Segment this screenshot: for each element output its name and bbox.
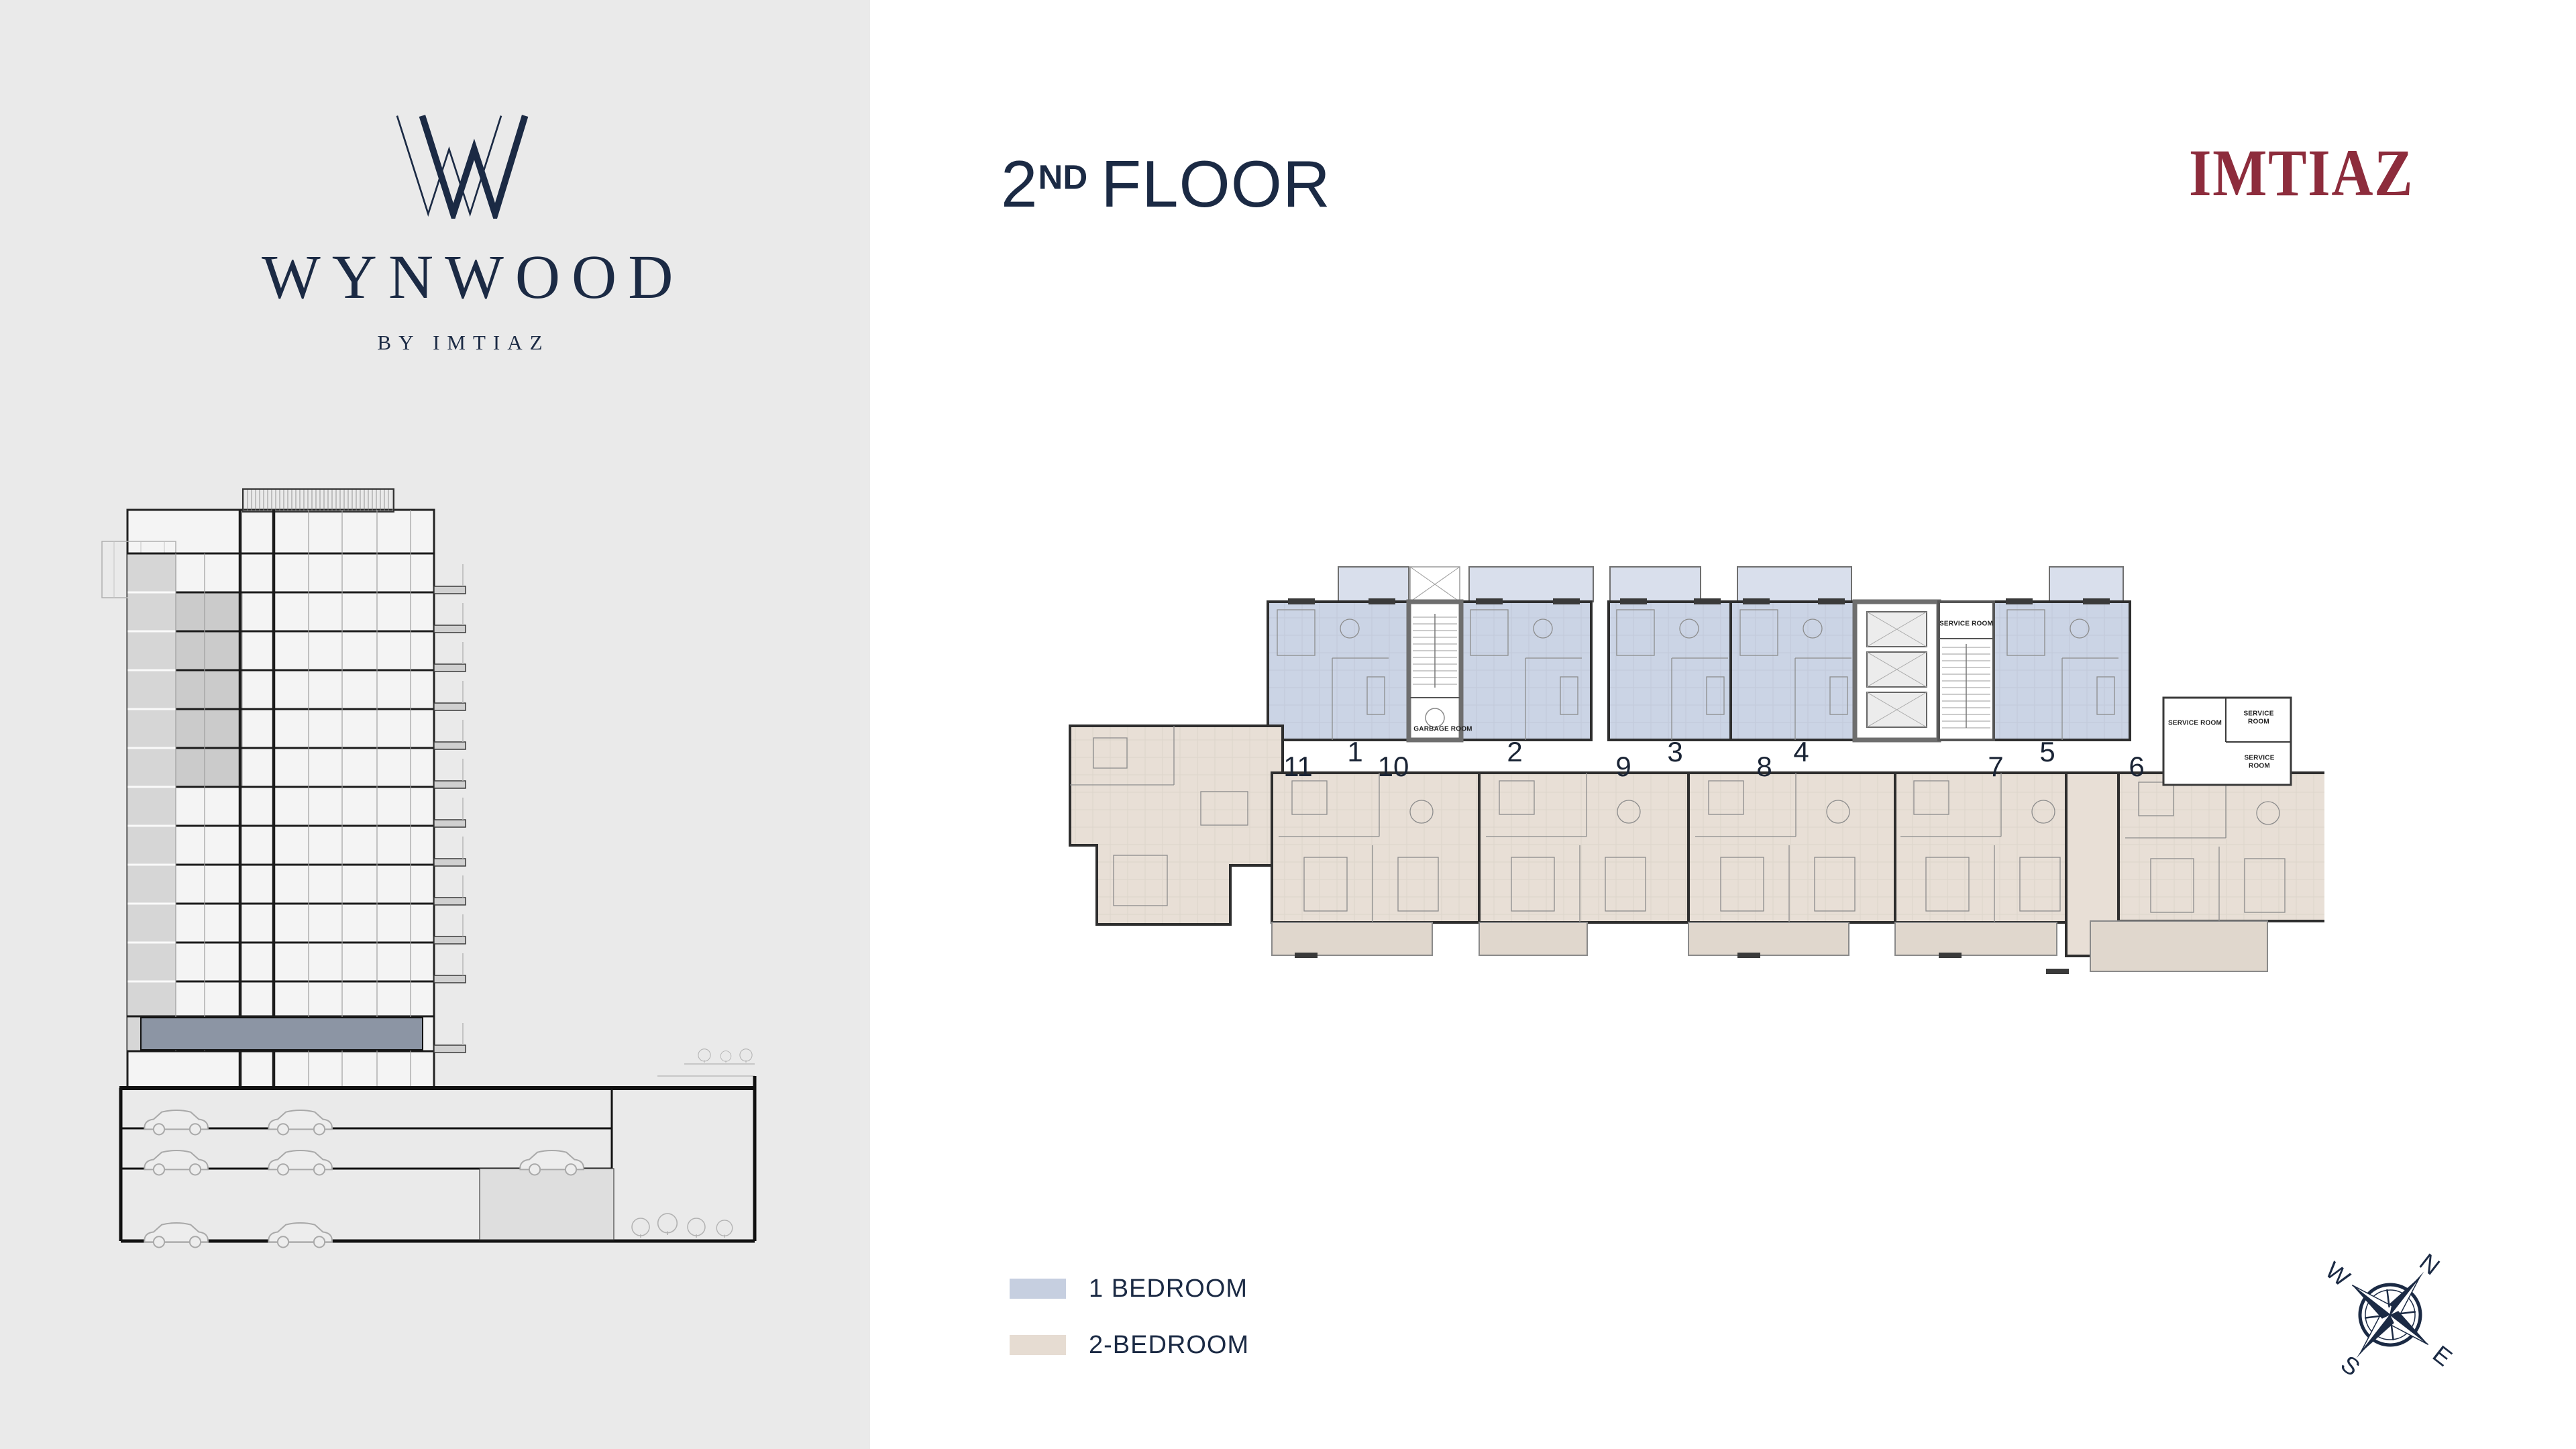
wynwood-tagline: BY IMTIAZ — [250, 331, 669, 355]
service-room-label: SERVICE ROOM — [1939, 620, 1993, 628]
corridor-number: 1 — [1347, 736, 1362, 768]
building-section-drawing — [101, 480, 771, 1251]
page-title: 2NDFLOOR — [1001, 146, 1331, 222]
highlighted-floor-band — [141, 1018, 423, 1050]
corridor-number: 10 — [1378, 751, 1409, 783]
legend-item-2-bedroom: 2-BEDROOM — [1010, 1330, 1249, 1360]
corridor-number: 6 — [2129, 751, 2144, 783]
balcony-unit-8 — [1688, 922, 1849, 955]
legend-label: 2-BEDROOM — [1089, 1331, 1249, 1360]
compass-letter-n: N — [2414, 1248, 2445, 1280]
balcony-unit-10 — [1272, 922, 1432, 955]
elevator-core — [1855, 602, 1939, 740]
stair-core-a — [1409, 602, 1461, 740]
compass-rose-icon: N E S W — [2320, 1240, 2474, 1394]
terrace-unit-6 — [2090, 921, 2267, 971]
balcony-unit-9 — [1479, 922, 1587, 955]
corridor-number: 9 — [1615, 751, 1631, 783]
service-room-label: SERVICE ROOM — [2235, 755, 2284, 770]
garbage-room-label: GARBAGE ROOM — [1412, 725, 1474, 733]
floor-plan: 11 1 10 2 9 3 8 4 7 5 6 GARBAGE ROOM SER… — [1067, 557, 2324, 981]
wynwood-wordmark: WYNWOOD — [250, 241, 669, 313]
floor-ordinal: ND — [1038, 158, 1088, 196]
corridor-number: 4 — [1793, 736, 1809, 768]
legend-swatch-2-bedroom — [1010, 1335, 1066, 1355]
compass-letter-w: W — [2320, 1256, 2355, 1291]
balcony-unit-2 — [1469, 567, 1593, 602]
roof-structure — [243, 489, 394, 512]
floor-number: 2 — [1001, 147, 1038, 221]
wynwood-logo: WYNWOOD BY IMTIAZ — [250, 113, 669, 355]
corridor-number: 2 — [1507, 736, 1522, 768]
corridor-number: 8 — [1756, 751, 1772, 783]
balcony-unit-4 — [1737, 567, 1851, 602]
basement-core — [480, 1169, 614, 1240]
balcony-unit-1 — [1338, 567, 1409, 602]
compass-letter-e: E — [2428, 1340, 2457, 1371]
legend-swatch-1-bedroom — [1010, 1279, 1066, 1299]
wynwood-monogram-icon — [391, 113, 529, 219]
corridor-number: 11 — [1283, 751, 1313, 783]
balcony-unit-7 — [1895, 922, 2057, 955]
balcony-unit-5 — [2049, 567, 2123, 602]
floor-word: FLOOR — [1101, 147, 1331, 221]
service-room-label: SERVICE ROOM — [2168, 719, 2222, 727]
corridor-number: 5 — [2039, 736, 2055, 768]
compass-letter-s: S — [2336, 1350, 2365, 1381]
legend-item-1-bedroom: 1 BEDROOM — [1010, 1273, 1249, 1304]
service-room-label: SERVICE ROOM — [2235, 710, 2283, 726]
imtiaz-brand-logo: IMTIAZ — [2189, 134, 2414, 211]
sidebar: WYNWOOD BY IMTIAZ — [0, 0, 870, 1449]
corridor-number: 3 — [1667, 736, 1682, 768]
legend-label: 1 BEDROOM — [1089, 1275, 1248, 1303]
balcony-unit-3 — [1610, 567, 1701, 602]
legend: 1 BEDROOM 2-BEDROOM — [1010, 1273, 1249, 1386]
corridor-number: 7 — [1988, 751, 2003, 783]
